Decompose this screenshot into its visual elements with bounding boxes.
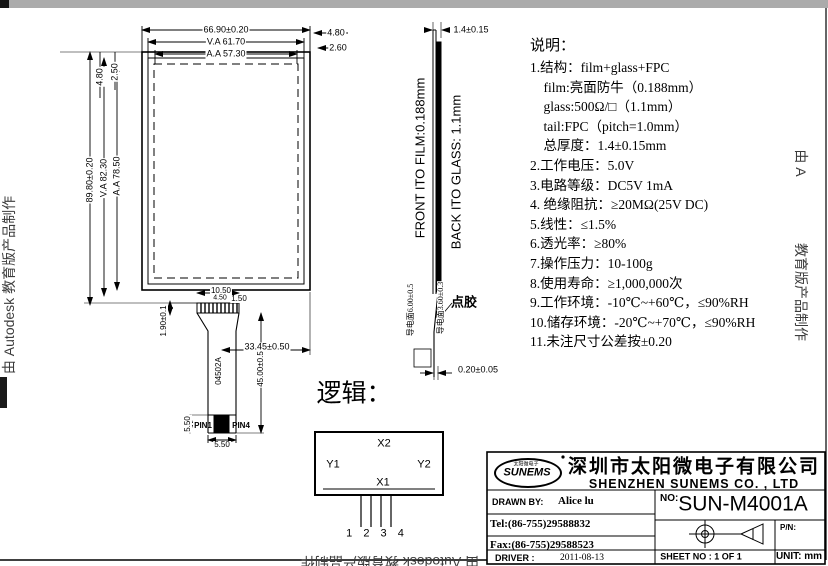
spec-notes-title: 说明： [530,34,824,55]
drawn-by-value: Alice lu [558,495,594,507]
spec-notes: 说明： 1.结构：film+glass+FPC film:亮面防牛（0.188m… [530,34,824,352]
dim-total-thickness: 1.4±0.15 [453,26,490,35]
dim-tail-edge: 1.50 [230,295,248,303]
dim-height-outer: 89.80±0.20 [86,157,95,204]
watermark-bottom: 由 Autodesk 教育版产品制作 [301,555,479,566]
top-edge-bar [0,0,828,8]
drawn-by-label: DRAWN BY: [492,497,543,507]
drawing-sheet: 由 Autodesk 教育版产品制作 由 A 教育版产品制作 由 Autodes… [0,0,828,566]
logic-title: 逻辑： [316,382,391,407]
dim-left-offset-va: 2.50 [111,62,120,82]
dim-height-aa: A.A 78.50 [113,155,122,196]
film-stack-label: FRONT ITO FILM:0.188mm [414,78,427,239]
glue-label: 点胶 [451,296,477,309]
logic-y1-label: Y1 [326,460,339,471]
company-name-cn: 深圳市太阳微电子有限公司 [568,458,820,477]
dim-tail-thickness: 1.90±0.1 [160,304,168,337]
logic-x1-label: X1 [376,478,389,489]
dim-left-offset-aa: 4.80 [96,67,105,87]
panel-outline [142,52,310,290]
dim-tail-pitch: 4.50 [212,295,228,302]
dim-tail-gap: 0.20±0.05 [457,366,499,375]
dim-width-va: V.A 61.70 [206,38,246,47]
dim-right-offset-aa: 4.80 [326,29,346,38]
dim-width-outer: 66.90±0.20 [203,26,250,35]
date-label: DRIVER : [495,553,535,563]
pin1-label: PIN1 [194,422,212,430]
logic-pin-numbers: 1 2 3 4 [346,529,408,540]
dim-conductive-left: 导电面6.00±0.5 [407,283,415,337]
dim-tail-length: 45.00±0.5 [257,350,265,388]
dim-conductive-right: 导电面3.60±0.3 [437,281,445,335]
model-number: SUN-M4001A [678,494,808,515]
logic-y2-label: Y2 [417,460,430,471]
company-logo-text: SUNEMS [503,468,550,479]
unit-value: UNIT: mm [776,552,822,562]
dim-height-va: V.A 82.30 [100,158,109,198]
tel-value: Tel:(86-755)29588832 [490,518,590,530]
dim-pin-block-height: 5.50 [184,415,192,433]
tail-part-number: 04502A [215,357,223,385]
dim-tail-offset: 33.45±0.50 [244,343,291,352]
pin4-label: PIN4 [232,422,250,430]
company-name-en: SHENZHEN SUNEMS CO. , LTD [589,478,799,491]
sheet-no-value: SHEET NO : 1 OF 1 [660,553,742,562]
date-value: 2011-08-13 [560,553,604,563]
watermark-left: 由 Autodesk 教育版产品制作 [2,196,16,374]
glass-stack-label: BACK ITO GLASS: 1.1mm [450,95,463,249]
spec-notes-body: 1.结构：film+glass+FPC film:亮面防牛（0.188mm） g… [530,58,824,352]
dim-pin-block-width: 5.50 [213,441,231,449]
drawing-no-label: NO: [660,493,678,504]
part-no-label: P/N: [780,523,796,532]
projection-symbol [689,520,763,548]
dim-width-aa: A.A 57.30 [205,50,246,59]
logic-x2-label: X2 [377,439,390,450]
top-edge-corner [0,0,9,8]
left-edge-mark [0,377,7,408]
dim-right-offset-va: 2.60 [328,44,348,53]
fax-value: Fax:(86-755)29588523 [490,539,594,551]
